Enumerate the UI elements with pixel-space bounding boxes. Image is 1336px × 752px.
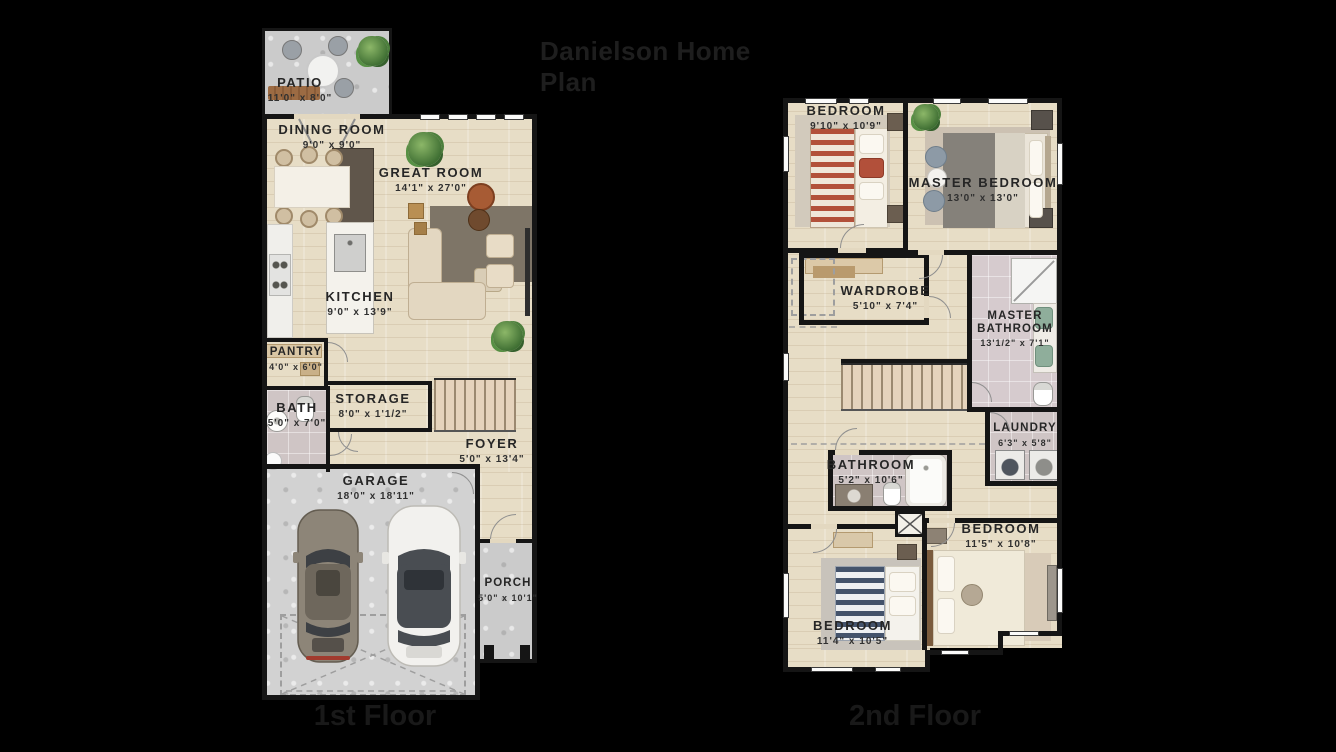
room-dims: 5'10" x 7'4" — [828, 301, 943, 312]
dining-chair — [325, 149, 343, 167]
hall-dash — [791, 443, 985, 445]
room-dims: 9'10" x 10'9" — [793, 121, 899, 132]
room-label-bedroom-3: BEDROOM 11'4" x 10'5" — [795, 619, 910, 647]
wall-wardrobe — [799, 320, 929, 325]
room-label-porch: PORCH 5'0" x 10'1" — [478, 577, 538, 603]
room-label-bathroom: BATHROOM 5'2" x 10'6" — [821, 458, 921, 486]
side-table — [414, 222, 427, 235]
dining-chair — [275, 149, 293, 167]
room-dims: 11'5" x 10'8" — [941, 539, 1061, 550]
wall-stairs — [841, 359, 967, 363]
wall-bedroom2 — [922, 518, 927, 650]
pillow — [889, 596, 916, 616]
window — [783, 573, 789, 618]
bathroom-vanity — [835, 484, 873, 508]
room-name: KITCHEN — [290, 290, 430, 304]
room-name: PATIO — [262, 76, 338, 90]
room-name: BEDROOM — [793, 104, 899, 118]
porch-post — [484, 645, 494, 659]
nightstand — [1031, 110, 1053, 130]
window — [933, 98, 961, 104]
room-name: BATHROOM — [821, 458, 921, 472]
patio-plant — [358, 36, 388, 66]
room-name: STORAGE — [324, 392, 422, 406]
car-gray — [292, 506, 364, 666]
room-label-bedroom-2: BEDROOM 11'5" x 10'8" — [941, 522, 1061, 550]
window — [476, 114, 496, 120]
room-dims: 14'1" x 27'0" — [351, 183, 511, 194]
wall-storage — [328, 381, 432, 385]
room-label-patio: PATIO 11'0" x 8'0" — [262, 76, 338, 104]
room-name: BEDROOM — [941, 522, 1061, 536]
room-label-great-room: GREAT ROOM 14'1" x 27'0" — [351, 166, 511, 194]
room-label-foyer: FOYER 5'0" x 13'4" — [442, 437, 542, 465]
room-dims: 5'2" x 10'6" — [821, 475, 921, 486]
dining-chair — [300, 210, 318, 228]
pillow — [937, 598, 955, 634]
dryer — [1029, 450, 1059, 480]
shower — [1011, 258, 1057, 304]
room-dims: 8'0" x 1'1/2" — [324, 409, 422, 420]
room-dims: 13'1/2" x 7'1" — [971, 338, 1059, 348]
room-name: PANTRY — [264, 346, 328, 359]
room-label-laundry: LAUNDRY 6'3" x 5'8" — [987, 422, 1063, 448]
room-dims: 11'0" x 8'0" — [262, 93, 338, 104]
wall-porch — [480, 659, 537, 663]
nightstand — [897, 544, 917, 560]
room-label-wardrobe: WARDROBE 5'10" x 7'4" — [828, 284, 943, 312]
room-label-master-bathroom: MASTER BATHROOM 13'1/2" x 7'1" — [971, 310, 1059, 348]
hall-dash — [789, 326, 837, 328]
shower-glass — [1012, 259, 1056, 303]
room-dims: 5'0" x 13'4" — [442, 454, 542, 465]
garage-door-dash — [286, 690, 456, 692]
room-dims: 4'0" x 6'0" — [264, 362, 328, 372]
round-side-table — [468, 209, 490, 231]
wall-master-bath — [967, 407, 1062, 412]
wall-laundry — [985, 481, 1062, 486]
wall-bathroom — [947, 450, 952, 511]
patio-chair — [328, 36, 348, 56]
armchair — [486, 234, 514, 258]
room-label-bedroom-1: BEDROOM 9'10" x 10'9" — [793, 104, 899, 132]
room-name: PORCH — [478, 577, 538, 590]
window — [988, 98, 1028, 104]
wall-bathroom — [828, 506, 952, 511]
linen-closet — [895, 511, 925, 537]
room-name: BEDROOM — [795, 619, 910, 633]
room-label-kitchen: KITCHEN 9'0" x 13'9" — [290, 290, 430, 318]
window — [504, 114, 524, 120]
first-floor-caption: 1st Floor — [280, 700, 470, 733]
dresser — [1047, 565, 1057, 621]
second-floor-plan: BEDROOM 9'10" x 10'9" MASTER BEDROOM 13'… — [783, 98, 1062, 672]
wall-garage — [262, 464, 267, 700]
dining-table — [274, 166, 350, 208]
window — [811, 667, 853, 672]
room-dims: 9'0" x 13'9" — [290, 307, 430, 318]
room-label-master-bedroom: MASTER BEDROOM 13'0" x 13'0" — [908, 176, 1058, 204]
armchair — [486, 264, 514, 288]
stairs — [841, 363, 967, 411]
window — [448, 114, 468, 120]
kitchen-sink — [334, 234, 366, 272]
window — [1057, 568, 1063, 613]
wall-pantry — [262, 338, 328, 342]
room-label-storage: STORAGE 8'0" x 1'1/2" — [324, 392, 422, 420]
patio-door-opening — [294, 114, 360, 119]
room-dims: 6'3" x 5'8" — [987, 438, 1063, 448]
room-name: DINING ROOM — [262, 123, 402, 137]
toilet — [1033, 382, 1053, 406]
porch-post — [520, 645, 530, 659]
door-opening — [835, 450, 859, 455]
bench — [833, 532, 873, 548]
pillow — [859, 158, 884, 178]
wall-wardrobe — [799, 253, 929, 258]
window — [420, 114, 440, 120]
room-name: BATH — [266, 401, 328, 415]
room-label-dining: DINING ROOM 9'0" x 9'0" — [262, 123, 402, 151]
room-name: MASTER BATHROOM — [971, 310, 1059, 335]
pouf — [925, 146, 947, 168]
stove — [269, 254, 291, 296]
pillow — [937, 556, 955, 592]
window — [941, 650, 969, 655]
dining-chair — [275, 207, 293, 225]
pillow — [1029, 140, 1043, 176]
window — [1009, 631, 1039, 636]
washer — [995, 450, 1025, 480]
door-opening — [811, 524, 837, 529]
sink — [1035, 345, 1053, 367]
window — [783, 353, 789, 381]
door-opening — [918, 250, 944, 255]
tv-panel — [525, 228, 530, 316]
room-label-pantry: PANTRY 4'0" x 6'0" — [264, 346, 328, 372]
door-opening — [838, 248, 866, 253]
plant — [493, 321, 523, 351]
room-label-bath: BATH 5'0" x 7'0" — [266, 401, 328, 429]
closet-x-icon — [898, 514, 922, 534]
bed-striped-red — [810, 128, 855, 228]
room-name: LAUNDRY — [987, 422, 1063, 435]
wall — [783, 667, 930, 672]
room-dims: 5'0" x 10'1" — [478, 593, 538, 603]
great-room-plant — [408, 132, 442, 166]
wall-storage — [428, 381, 432, 432]
round-cushion — [961, 584, 983, 606]
room-name: GREAT ROOM — [351, 166, 511, 180]
second-floor-caption: 2nd Floor — [820, 700, 1010, 733]
room-dims: 5'0" x 7'0" — [266, 418, 328, 429]
pillow — [859, 182, 884, 200]
entry-door-opening — [490, 539, 516, 543]
room-dims: 18'0" x 18'11" — [311, 491, 441, 502]
pillow — [889, 572, 916, 592]
room-name: GARAGE — [311, 474, 441, 488]
first-floor-plan: PATIO 11'0" x 8'0" DINING ROOM 9'0" x 9'… — [262, 28, 537, 700]
side-table — [408, 203, 424, 219]
window — [875, 667, 901, 672]
room-dims: 13'0" x 13'0" — [908, 193, 1058, 204]
pillow — [859, 134, 884, 154]
car-white — [380, 502, 468, 670]
patio-chair — [282, 40, 302, 60]
floor-plan-canvas: Danielson Home Plan — [0, 0, 1336, 752]
wall-wardrobe — [799, 253, 804, 325]
room-name: MASTER BEDROOM — [908, 176, 1058, 190]
room-name: FOYER — [442, 437, 542, 451]
room-dims: 9'0" x 9'0" — [262, 140, 402, 151]
window — [783, 136, 789, 172]
plant — [913, 104, 939, 130]
page-title: Danielson Home Plan — [540, 36, 810, 98]
room-dims: 11'4" x 10'5" — [795, 636, 910, 647]
room-label-garage: GARAGE 18'0" x 18'11" — [311, 474, 441, 502]
stairs — [434, 378, 516, 432]
room-name: WARDROBE — [828, 284, 943, 298]
wall-bath — [262, 386, 330, 390]
